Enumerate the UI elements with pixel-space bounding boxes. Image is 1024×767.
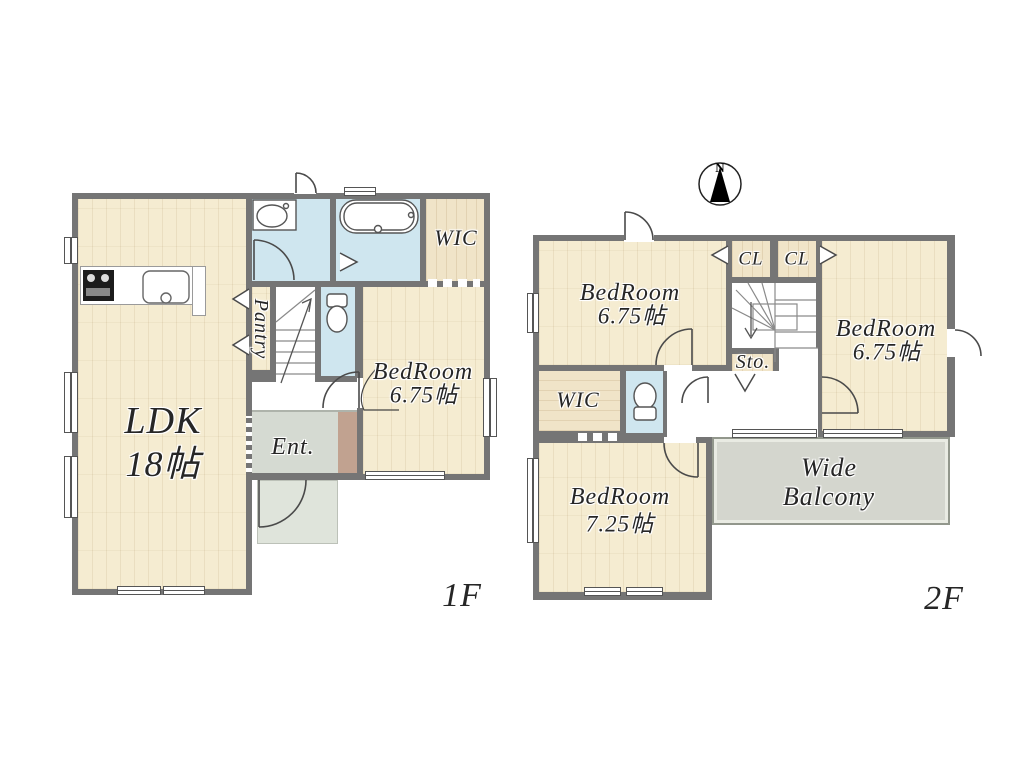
window-ldk-left-bottom [64, 456, 78, 518]
window-ldk-left-top [64, 237, 78, 264]
kitchen-counter-return [192, 266, 206, 316]
compass-north-label: N [715, 160, 725, 175]
window-ldk-left-mid [64, 372, 78, 433]
door-gap-bedroom-nw [664, 365, 692, 371]
label-bedroom-nw-line2: 6.75帖 [598, 305, 666, 328]
label-bedroom-sw-line2: 7.25帖 [586, 513, 654, 536]
window-bathroom-top [344, 187, 376, 196]
compass-needle [710, 167, 730, 202]
label-storage: Sto. [736, 352, 771, 372]
label-bedroom-east-line1: BedRoom [836, 317, 936, 341]
window-bedroom-sw-bottom-right [626, 587, 663, 596]
room-stairs-1f [276, 287, 315, 382]
window-balcony-left [732, 429, 817, 438]
window-ldk-bottom-left [117, 586, 161, 595]
room-toilet-2f [626, 371, 663, 433]
entrance-step-strip [338, 412, 357, 473]
label-closet-left: CL [738, 250, 763, 269]
room-toilet-1f [321, 287, 355, 376]
door-gap-bedroom-sw [664, 437, 696, 443]
door-gap-top-2f [624, 235, 654, 242]
label-ldk-line2: 18帖 [125, 446, 200, 482]
label-balcony-line2: Balcony [783, 484, 875, 510]
entrance-cabinet-marks [246, 416, 252, 472]
window-bedroom-1f-right [483, 378, 497, 437]
door-gap-bedroom-east [947, 329, 955, 357]
entrance-porch [257, 480, 338, 544]
label-wic-1f: WIC [434, 227, 477, 249]
door-gap-top-1f [294, 187, 316, 194]
opening-wic-1f [428, 279, 480, 287]
room-stairs-2f [732, 283, 816, 348]
label-balcony-line1: Wide [801, 455, 857, 481]
label-pantry: Pantry [251, 299, 271, 359]
kitchen-counter [80, 266, 206, 305]
room-stairs-2f-landing [779, 348, 818, 371]
label-entrance: Ent. [271, 435, 314, 459]
window-balcony-right [823, 429, 903, 438]
label-ldk-line1: LDK [125, 402, 202, 440]
room-hall-1f [252, 382, 357, 412]
window-bedroom-nw-left [527, 293, 539, 333]
window-bedroom-sw-bottom-left [584, 587, 621, 596]
label-bedroom-1f-line2: 6.75帖 [390, 384, 458, 407]
door-gap-bedroom-1f [357, 378, 363, 408]
label-wic-2f: WIC [556, 389, 599, 411]
label-bedroom-1f-line1: BedRoom [373, 360, 473, 384]
entrance-step-line [252, 410, 357, 412]
label-bedroom-sw-line1: BedRoom [570, 485, 670, 509]
label-floor-1f: 1F [442, 579, 482, 613]
opening-wic-2f [578, 433, 618, 441]
floorplan-canvas: N LDK 18帖 BedRoom 6.75帖 Pantry WIC Ent. … [0, 0, 1024, 767]
label-bedroom-east-line2: 6.75帖 [853, 341, 921, 364]
room-washroom [252, 199, 330, 281]
door-bedroom-east-exterior [955, 330, 981, 356]
window-bedroom-1f-bottom [365, 471, 445, 480]
label-floor-2f: 2F [924, 582, 964, 616]
label-bedroom-nw-line1: BedRoom [580, 281, 680, 305]
room-hall-2f [667, 371, 818, 437]
room-bathroom [336, 199, 420, 281]
window-ldk-bottom-right [163, 586, 205, 595]
room-ldk [78, 199, 246, 589]
label-closet-right: CL [784, 250, 809, 269]
window-bedroom-sw-left [527, 458, 539, 543]
compass: N [699, 160, 741, 205]
